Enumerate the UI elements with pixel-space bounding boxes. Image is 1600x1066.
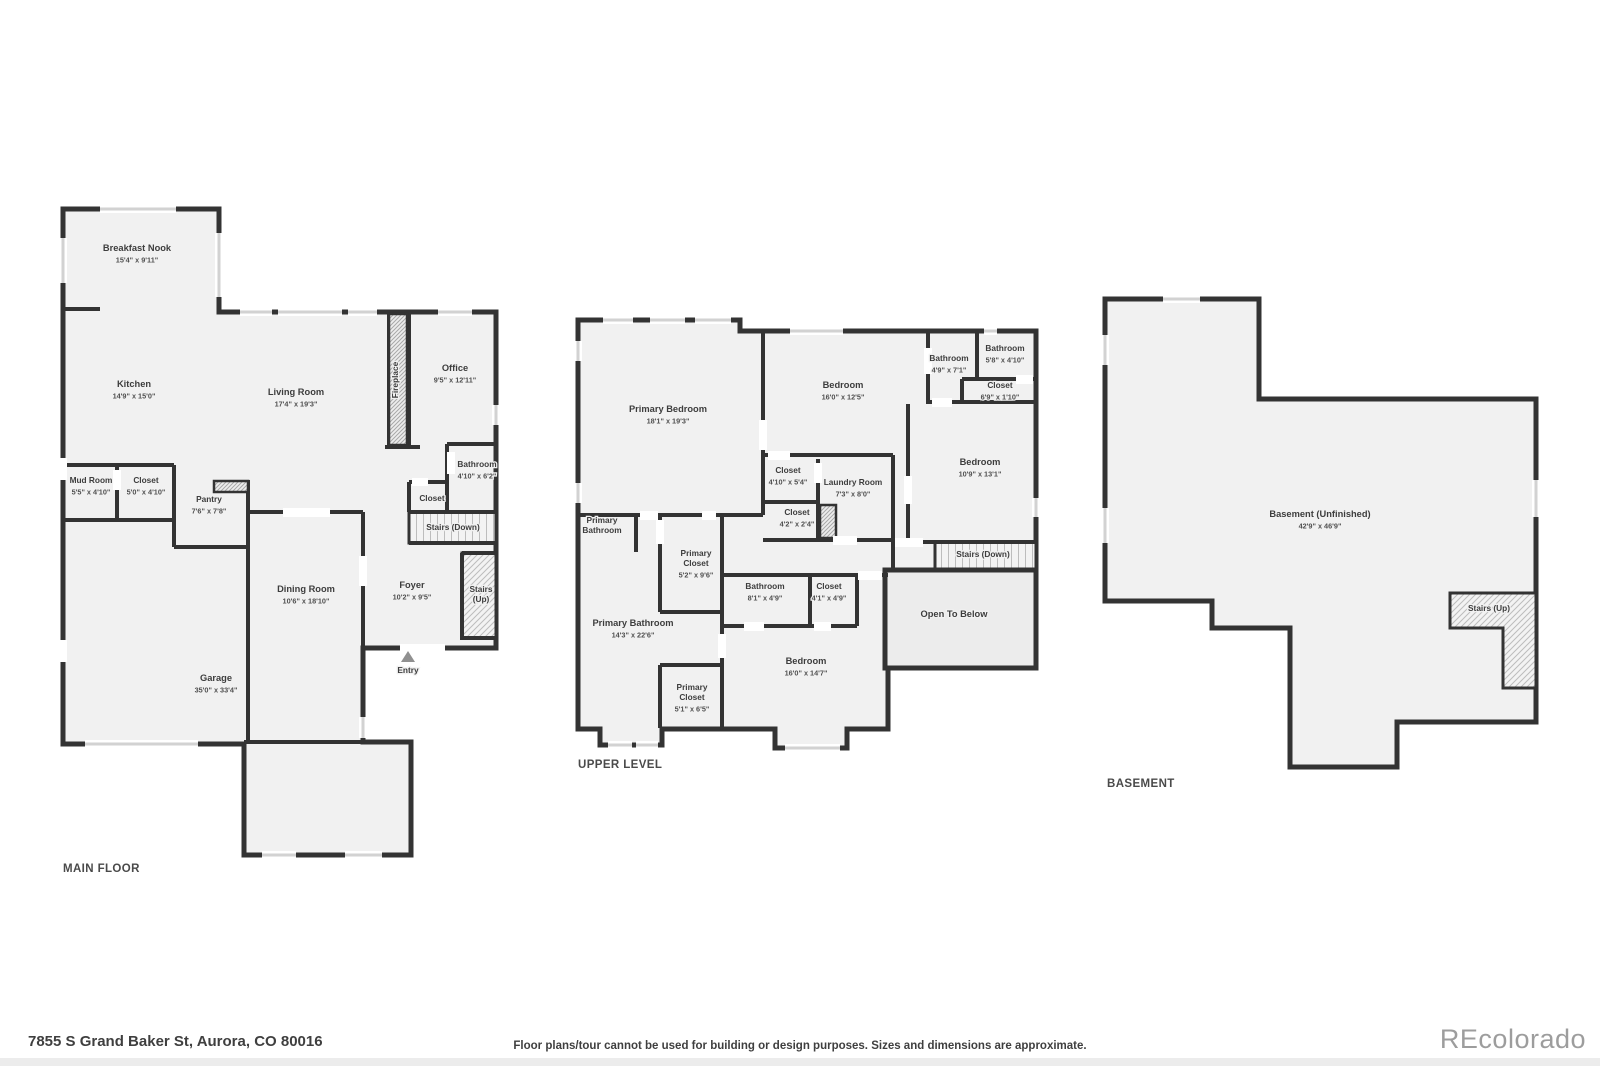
chase-hatch: [820, 505, 836, 538]
window-bar: [608, 744, 632, 747]
window-bar: [218, 233, 221, 297]
room-label: PrimaryBathroom: [582, 515, 621, 535]
brand-logo: REcolorado: [1440, 1024, 1586, 1055]
room-label: Stairs (Down): [956, 549, 1010, 559]
door-opening: [759, 420, 767, 450]
door-opening: [932, 398, 952, 407]
window-bar: [577, 483, 580, 503]
room-label: Closet: [419, 493, 445, 503]
floor-plan-main: Breakfast Nook15'4" x 9'11"Kitchen14'9" …: [59, 205, 500, 875]
door-opening: [814, 463, 822, 483]
door-opening: [400, 644, 445, 653]
window-bar: [348, 311, 377, 314]
floor-plan-basement: Basement (Unfinished)42'9" x 46'9"Stairs…: [1101, 295, 1540, 790]
room-label: Stairs (Up): [1468, 603, 1510, 613]
window-bar: [1535, 480, 1538, 517]
window-bar: [603, 319, 633, 322]
window-bar: [785, 747, 840, 750]
room-label: Stairs (Down): [426, 522, 480, 532]
window-bar: [100, 208, 176, 211]
door-opening: [744, 622, 764, 631]
door-opening: [768, 451, 790, 460]
window-bar: [438, 311, 472, 314]
window-bar: [790, 330, 843, 333]
open-to-below-area: [885, 570, 1036, 668]
window-bar: [984, 330, 997, 333]
door-opening: [640, 511, 658, 520]
window-bar: [1104, 335, 1107, 365]
window-bar: [695, 319, 731, 322]
window-bar: [62, 238, 65, 283]
window-bar: [495, 405, 498, 425]
window-bar: [278, 311, 342, 314]
bottom-strip: [0, 1058, 1600, 1066]
basement-outline: [1105, 299, 1536, 767]
window-bar: [345, 854, 382, 857]
window-bar: [240, 311, 272, 314]
door-opening: [895, 538, 923, 547]
window-bar: [636, 744, 658, 747]
door-opening: [412, 478, 428, 486]
door-opening: [656, 520, 664, 544]
door-opening: [702, 511, 716, 520]
floor-plan-upper: Primary Bedroom18'1" x 19'3"Bedroom16'0"…: [574, 316, 1040, 771]
window-bar: [1104, 508, 1107, 543]
floor-title-main: MAIN FLOOR: [63, 863, 140, 875]
door-opening: [59, 458, 67, 480]
room-label: PrimaryCloset5'1" x 6'5": [675, 682, 710, 714]
room-label: PrimaryCloset5'2" x 9'6": [679, 548, 714, 580]
window-bar: [262, 854, 296, 857]
room-label: Entry: [397, 665, 419, 675]
floor-title-upper: UPPER LEVEL: [578, 759, 662, 771]
floor-plans-canvas: Breakfast Nook15'4" x 9'11"Kitchen14'9" …: [0, 0, 1600, 1066]
upper-level-outline: [578, 320, 1036, 748]
door-opening: [814, 622, 831, 631]
door-opening: [833, 536, 857, 545]
window-bar: [577, 341, 580, 361]
door-opening: [59, 640, 67, 662]
pantry-shelf: [214, 481, 248, 492]
floor-title-basement: BASEMENT: [1107, 778, 1175, 790]
room-label: Open To Below: [921, 609, 989, 619]
window-bar: [1035, 498, 1038, 517]
window-bar: [650, 319, 685, 322]
door-opening: [113, 470, 121, 490]
door-opening: [359, 556, 367, 586]
door-opening: [447, 452, 455, 474]
door-opening: [283, 508, 330, 517]
door-opening: [858, 571, 882, 580]
door-opening: [904, 476, 912, 504]
window-bar: [1163, 298, 1200, 301]
window-bar: [362, 717, 365, 738]
window-bar: [85, 743, 198, 746]
disclaimer-text: Floor plans/tour cannot be used for buil…: [0, 1040, 1600, 1052]
door-opening: [718, 634, 726, 658]
room-label: Fireplace: [390, 361, 400, 398]
door-opening: [1016, 375, 1033, 384]
